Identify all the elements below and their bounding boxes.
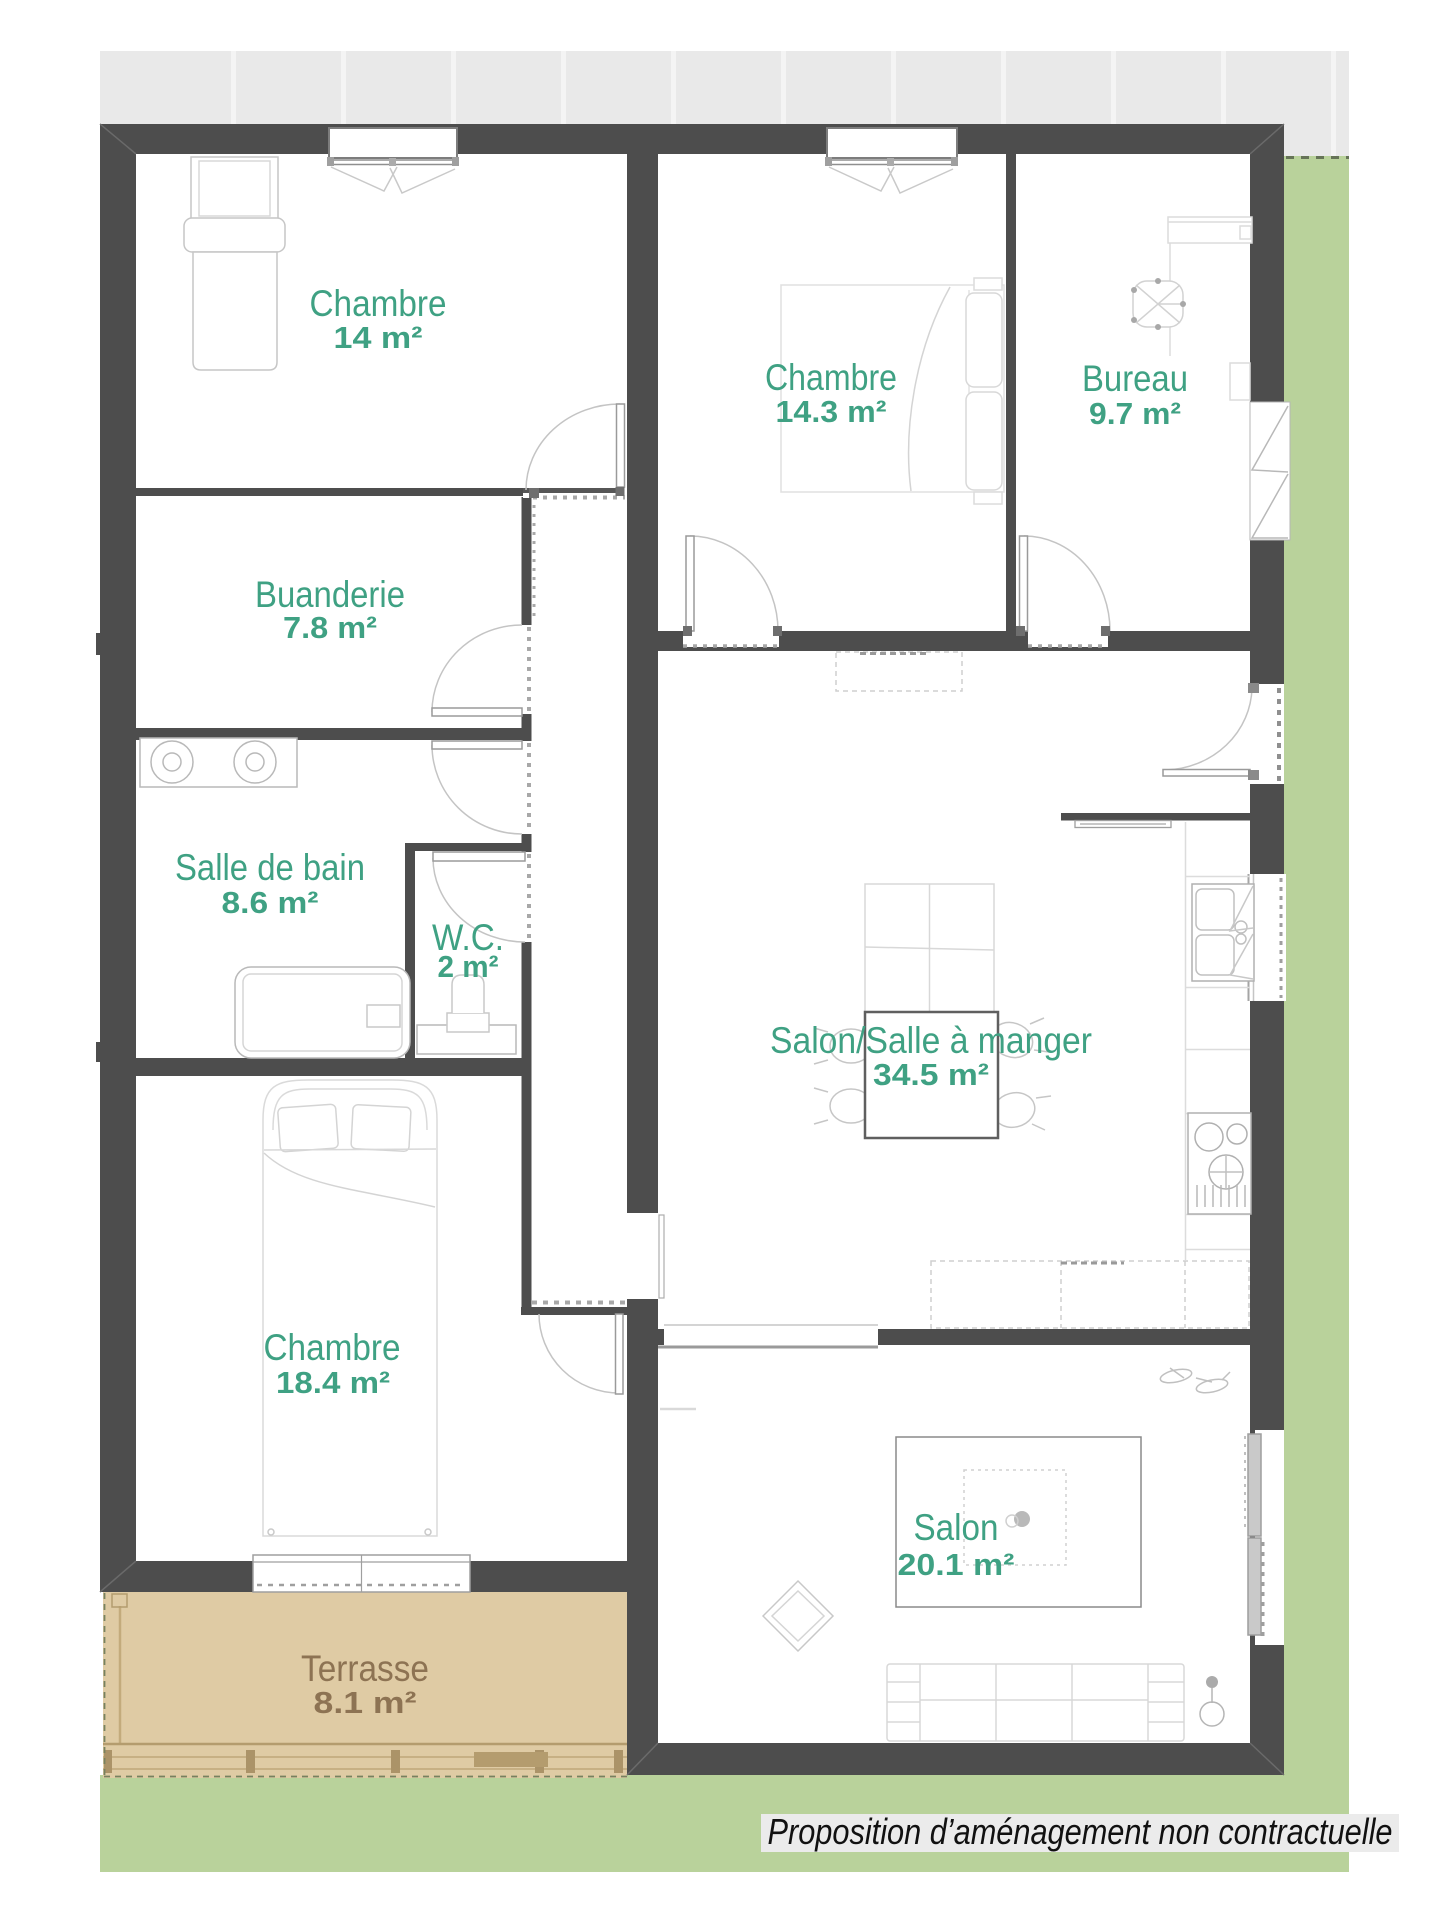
svg-text:Chambre: Chambre [264,1327,401,1368]
svg-text:20.1 m²: 20.1 m² [898,1547,1015,1582]
svg-text:Buanderie: Buanderie [255,574,405,615]
svg-text:34.5 m²: 34.5 m² [873,1057,989,1092]
svg-text:7.8 m²: 7.8 m² [283,610,377,645]
svg-text:8.1 m²: 8.1 m² [314,1685,417,1720]
svg-text:14.3 m²: 14.3 m² [776,394,887,429]
svg-text:Salon: Salon [914,1507,999,1548]
svg-text:Proposition d’aménagement non: Proposition d’aménagement non contractue… [768,1811,1393,1852]
svg-text:2 m²: 2 m² [438,949,499,984]
svg-text:Terrasse: Terrasse [301,1648,429,1689]
svg-text:Bureau: Bureau [1082,358,1188,399]
svg-text:Salle de bain: Salle de bain [175,847,365,888]
svg-text:8.6 m²: 8.6 m² [222,885,319,920]
svg-text:18.4 m²: 18.4 m² [276,1365,390,1400]
svg-text:Salon/Salle à manger: Salon/Salle à manger [770,1020,1092,1061]
svg-text:Chambre: Chambre [310,283,447,324]
svg-text:Chambre: Chambre [765,357,897,398]
svg-text:9.7 m²: 9.7 m² [1089,396,1181,431]
svg-text:14 m²: 14 m² [334,320,423,355]
